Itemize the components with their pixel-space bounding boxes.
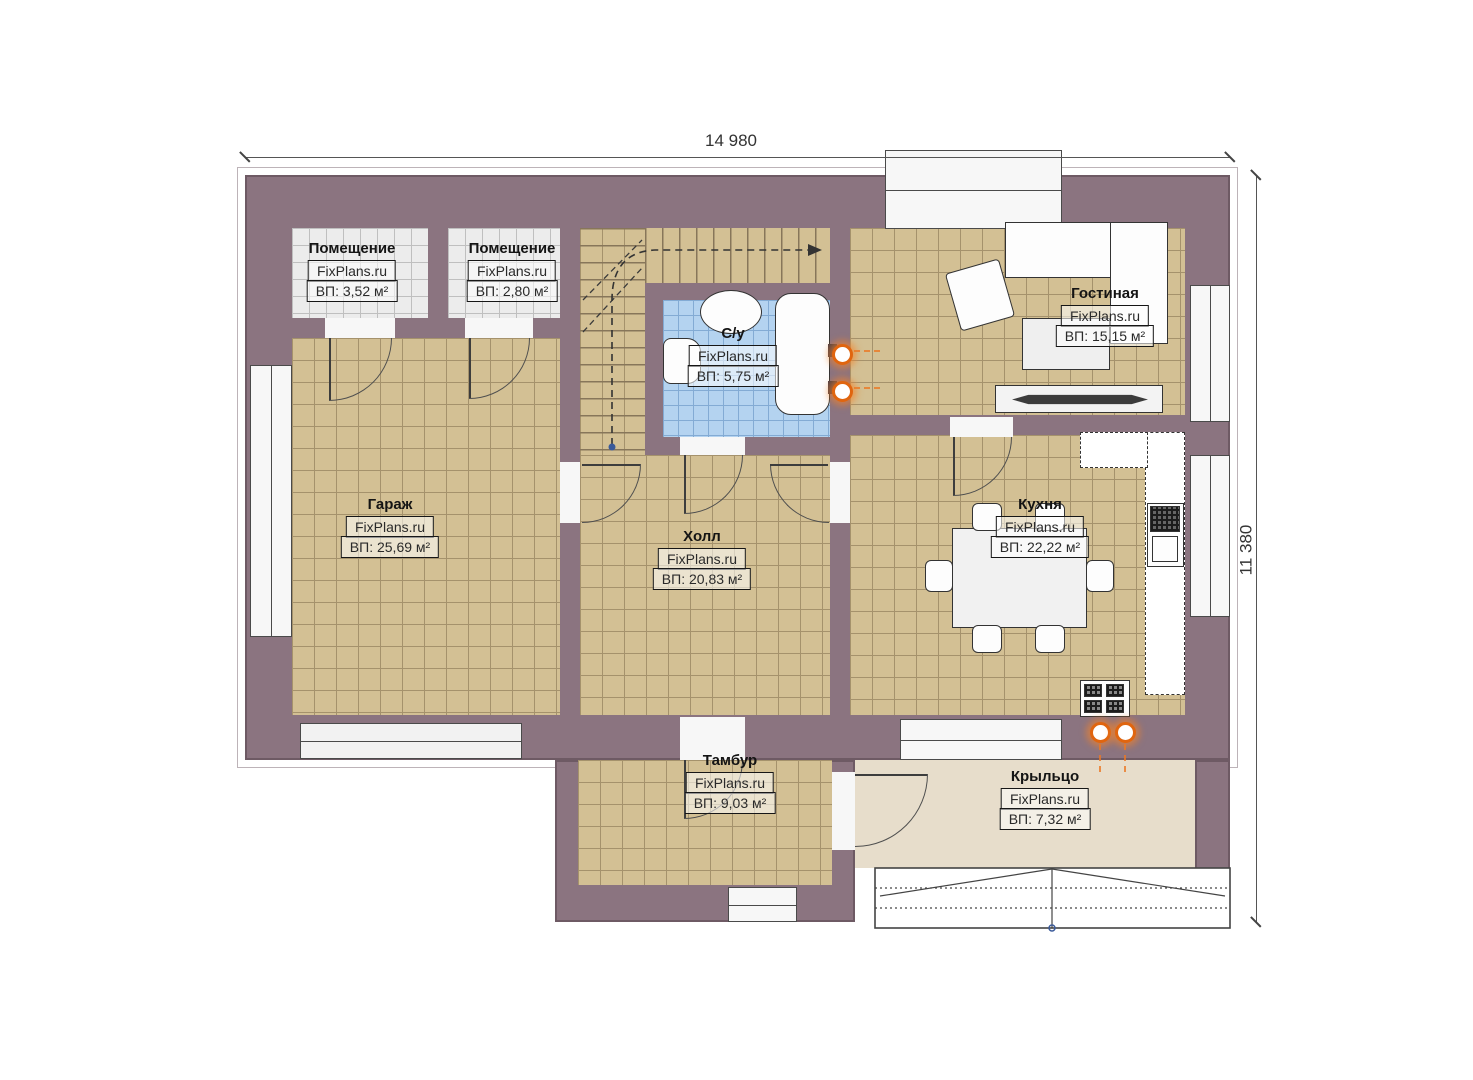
dimension-width-label: 14 980 <box>705 131 757 151</box>
room-area: ВП: 5,75 м² <box>688 365 779 387</box>
heating-riser-icon <box>1115 722 1136 743</box>
watermark-box: FixPlans.ru <box>346 516 434 538</box>
chair-icon <box>925 560 953 592</box>
room-area: ВП: 9,03 м² <box>685 792 776 814</box>
room-label-bathroom: С/у FixPlans.ru ВП: 5,75 м² <box>688 325 779 387</box>
watermark-box: FixPlans.ru <box>468 260 556 282</box>
room-label-storage-2: Помещение FixPlans.ru ВП: 2,80 м² <box>467 240 558 302</box>
window-living-right <box>1190 285 1230 422</box>
watermark-box: FixPlans.ru <box>996 516 1084 538</box>
room-area: ВП: 25,69 м² <box>341 536 439 558</box>
room-name: С/у <box>721 325 744 342</box>
watermark-box: FixPlans.ru <box>658 548 746 570</box>
kitchen-counter-corner <box>1080 432 1148 468</box>
burner-1 <box>1084 684 1102 697</box>
room-name: Гостиная <box>1071 285 1139 302</box>
room-label-porch: Крыльцо FixPlans.ru ВП: 7,32 м² <box>1000 768 1091 830</box>
room-area: ВП: 15,15 м² <box>1056 325 1154 347</box>
heating-flow-dashes <box>1099 744 1101 772</box>
room-label-hall: Холл FixPlans.ru ВП: 20,83 м² <box>653 528 751 590</box>
window-vestibule-bottom <box>728 887 797 922</box>
room-name: Помещение <box>309 240 396 257</box>
heating-riser-icon <box>832 381 853 402</box>
room-label-kitchen: Кухня FixPlans.ru ВП: 22,22 м² <box>991 496 1089 558</box>
floor-plan: Помещение FixPlans.ru ВП: 3,52 м² Помеще… <box>0 0 1473 1080</box>
chair-icon <box>1035 625 1065 653</box>
watermark-box: FixPlans.ru <box>308 260 396 282</box>
room-name: Холл <box>683 528 721 545</box>
room-label-living-room: Гостиная FixPlans.ru ВП: 15,15 м² <box>1056 285 1154 347</box>
window-garage-left <box>250 365 292 637</box>
tv-icon <box>1012 394 1148 405</box>
room-area: ВП: 7,32 м² <box>1000 808 1091 830</box>
chair-icon <box>1086 560 1114 592</box>
window-kitchen-bottom <box>900 719 1062 760</box>
burner-3 <box>1084 700 1102 713</box>
room-name: Тамбур <box>703 752 757 769</box>
watermark-box: FixPlans.ru <box>686 772 774 794</box>
room-name: Помещение <box>469 240 556 257</box>
bathtub-icon <box>775 293 830 415</box>
heating-flow-dashes <box>1124 744 1126 772</box>
watermark-box: FixPlans.ru <box>689 345 777 367</box>
watermark-box: FixPlans.ru <box>1061 305 1149 327</box>
window-living-top <box>885 150 1062 229</box>
room-name: Кухня <box>1018 496 1062 513</box>
kitchen-sink-icon <box>1152 536 1178 562</box>
room-area: ВП: 2,80 м² <box>467 280 558 302</box>
dimension-height-label: 11 380 <box>1236 525 1256 576</box>
room-label-garage: Гараж FixPlans.ru ВП: 25,69 м² <box>341 496 439 558</box>
heating-flow-dashes <box>854 350 880 352</box>
room-label-vestibule: Тамбур FixPlans.ru ВП: 9,03 м² <box>685 752 776 814</box>
room-name: Крыльцо <box>1011 768 1079 785</box>
chair-icon <box>972 625 1002 653</box>
burner-4 <box>1106 700 1124 713</box>
fridge-icon <box>1150 506 1180 532</box>
heating-riser-icon <box>832 344 853 365</box>
room-label-storage-1: Помещение FixPlans.ru ВП: 3,52 м² <box>307 240 398 302</box>
burner-2 <box>1106 684 1124 697</box>
garage-door <box>300 723 522 759</box>
room-area: ВП: 3,52 м² <box>307 280 398 302</box>
room-area: ВП: 20,83 м² <box>653 568 751 590</box>
watermark-box: FixPlans.ru <box>1001 788 1089 810</box>
window-kitchen-right <box>1190 455 1230 617</box>
room-area: ВП: 22,22 м² <box>991 536 1089 558</box>
heating-flow-dashes <box>854 387 880 389</box>
heating-riser-icon <box>1090 722 1111 743</box>
dimension-line-top <box>245 157 1230 158</box>
room-name: Гараж <box>368 496 413 513</box>
